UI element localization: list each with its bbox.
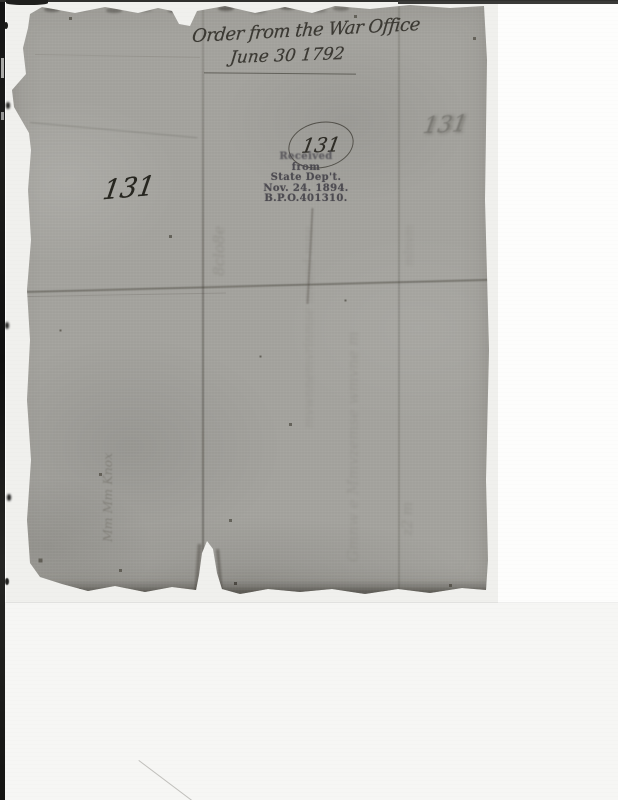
scanner-edge-bar-gap-small [1,112,4,120]
ghost-writing-column-right-upper: mlnvm [402,156,416,266]
stamp-line-received: Received [246,152,366,163]
scanner-edge-line-top-right [398,1,618,4]
page-number-right-faint: 131 [421,111,469,140]
received-stamp: Received from State Dep't. Nov. 24. 1894… [246,152,366,205]
vertical-pencil-stroke [306,208,313,304]
paper-mottling [10,4,490,594]
horizontal-fold-crease [26,279,488,293]
ghost-writing-left-vertical: Mm Mm Knox [100,424,115,542]
scanned-document-page: Order from the War Office June 30 1792 1… [0,0,618,800]
docket-date-handwriting: June 30 1792 [229,44,346,68]
stamp-line-bpo-number: B.P.O.401310. [246,194,366,205]
scanner-edge-chunk-top-left [6,0,48,5]
scan-bed-lower-area [0,603,618,800]
vertical-fold-crease-right [398,6,400,590]
diagonal-crease-upper-left [30,122,197,139]
stamp-line-state-dept: State Dep't. [246,173,366,184]
docket-title-handwriting: Order from the War Office [191,14,421,47]
page-number-left: 131 [101,170,157,206]
ghost-writing-column-center-lower: Gmnw e Mmvzemse wmvne m [344,240,362,562]
scanner-edge-bar-blobs [4,22,8,29]
scan-bed-divider-line [0,602,618,603]
docket-underline [204,72,356,74]
paper-grain-texture [10,4,490,594]
vertical-fold-crease-center [202,6,204,590]
ghost-writing-column-center-upper: mvwnnemvrinmse mvund mne [302,184,317,428]
faint-crease-top [35,54,200,58]
scanner-edge-bar-left [0,0,5,800]
ghost-writing-loops: 8clo8e [210,184,228,276]
scanner-edge-bar-gap [1,58,4,78]
ghost-writing-column-right-lower: z2 m [400,452,416,536]
document-paper: Order from the War Office June 30 1792 1… [10,4,490,594]
horizontal-fold-crease-echo [26,293,226,297]
